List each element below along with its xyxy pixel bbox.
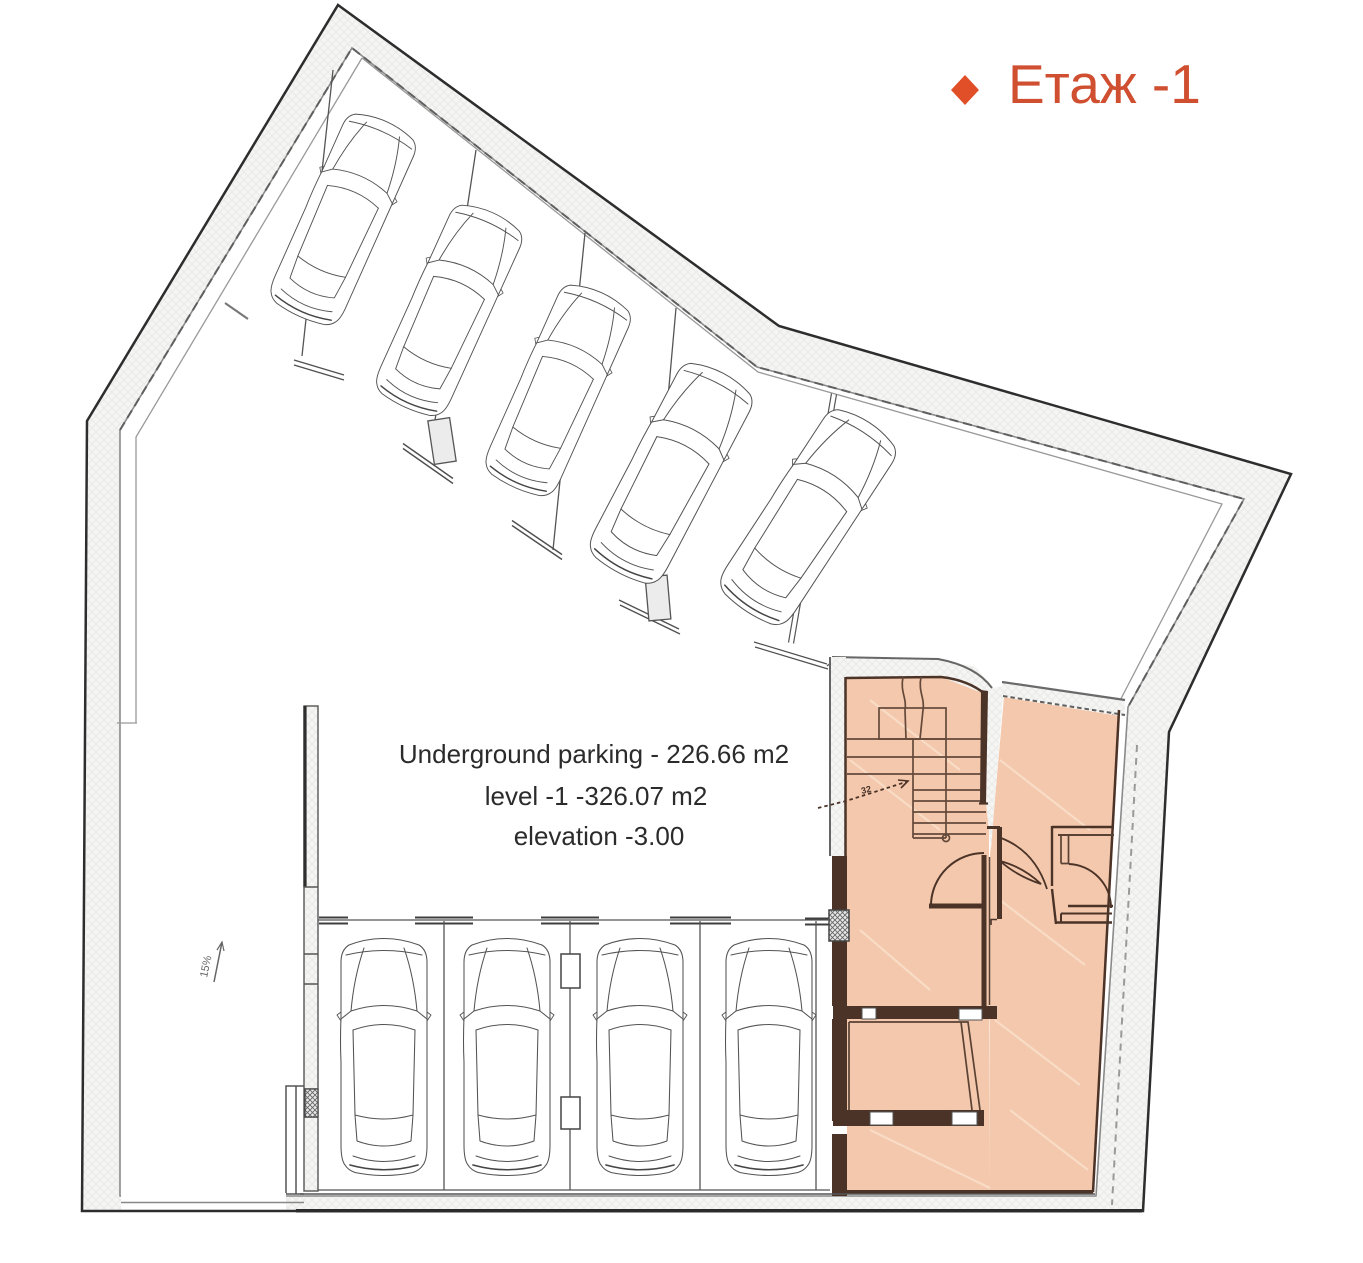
svg-text:15%: 15%	[198, 954, 214, 978]
svg-text:level -1 -326.07 m2: level -1 -326.07 m2	[485, 781, 708, 811]
svg-text:elevation -3.00: elevation -3.00	[514, 821, 685, 851]
svg-text:Underground parking - 226.66: Underground parking - 226.66 m2	[399, 739, 789, 769]
svg-text:Етаж -1: Етаж -1	[1008, 53, 1201, 115]
